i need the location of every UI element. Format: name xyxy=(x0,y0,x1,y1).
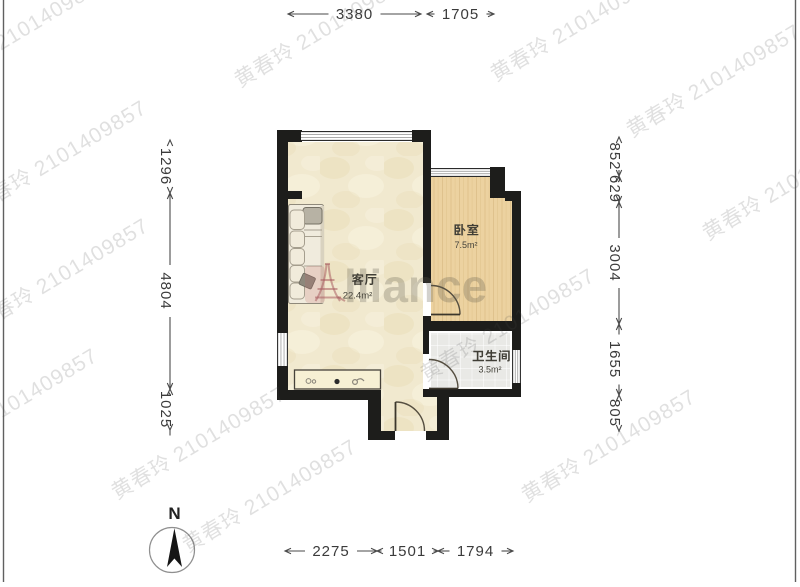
svg-text:2275: 2275 xyxy=(312,543,349,560)
svg-text:1655: 1655 xyxy=(606,341,623,378)
svg-text:lliance: lliance xyxy=(344,260,487,312)
svg-text:3.5m²: 3.5m² xyxy=(478,365,501,375)
svg-text:629: 629 xyxy=(606,175,623,203)
svg-text:1705: 1705 xyxy=(442,6,479,23)
svg-text:852: 852 xyxy=(606,142,623,170)
svg-text:1501: 1501 xyxy=(389,543,426,560)
svg-text:N: N xyxy=(168,504,180,523)
svg-text:1296: 1296 xyxy=(157,148,174,185)
svg-text:1794: 1794 xyxy=(457,543,494,560)
svg-text:1025: 1025 xyxy=(157,391,174,428)
svg-text:7.5m²: 7.5m² xyxy=(454,240,477,250)
svg-text:805: 805 xyxy=(606,399,623,427)
svg-text:3004: 3004 xyxy=(606,244,623,281)
svg-text:4804: 4804 xyxy=(157,272,174,309)
